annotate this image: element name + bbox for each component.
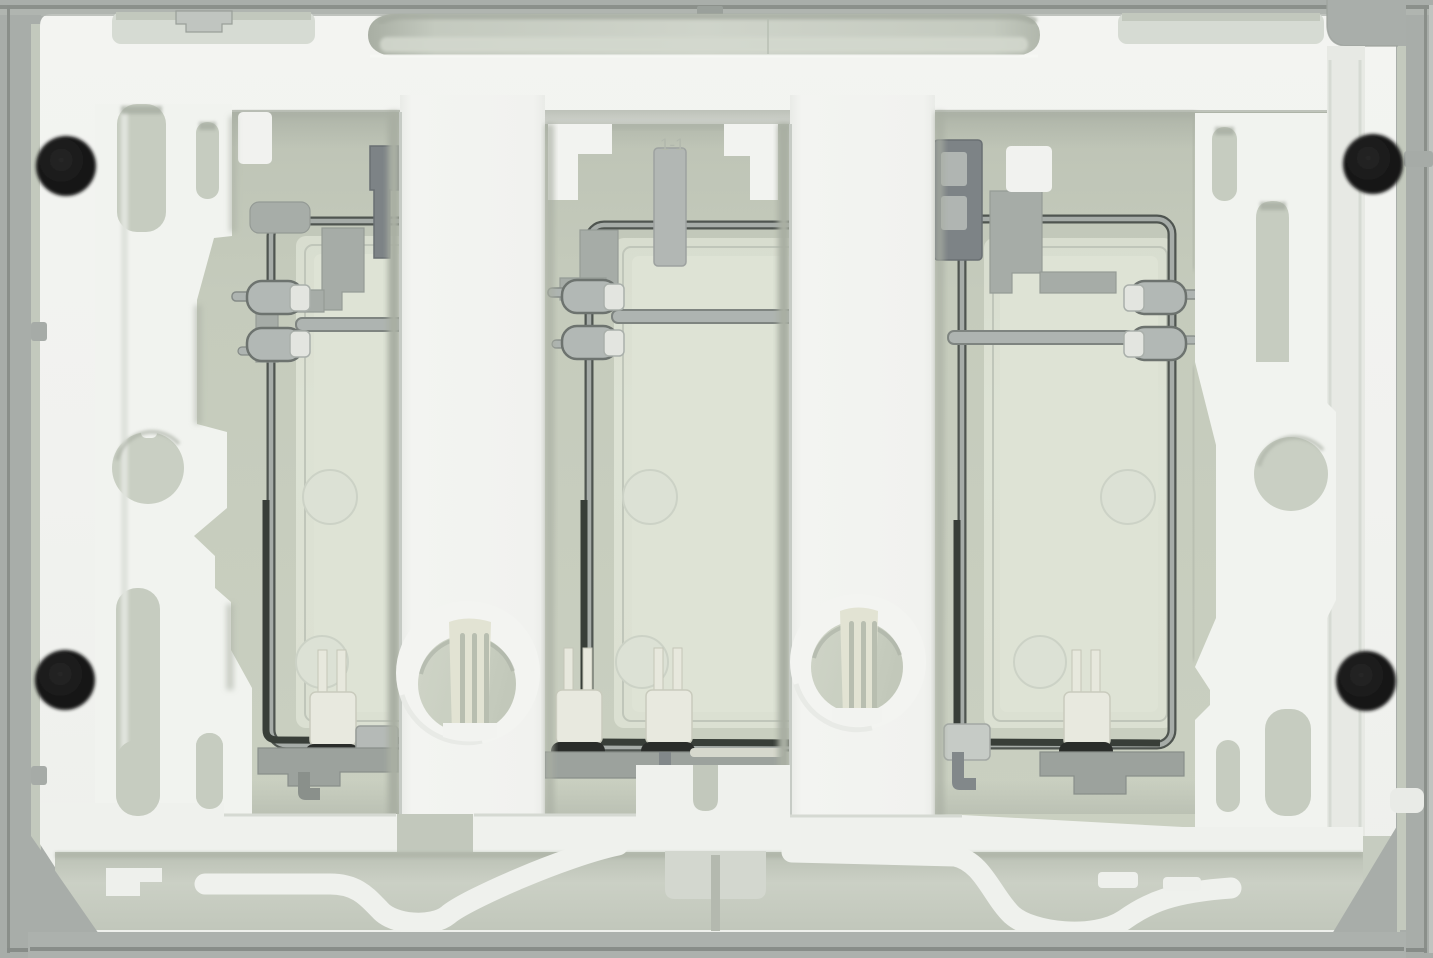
svg-text:1-1: 1-1 xyxy=(660,135,685,154)
